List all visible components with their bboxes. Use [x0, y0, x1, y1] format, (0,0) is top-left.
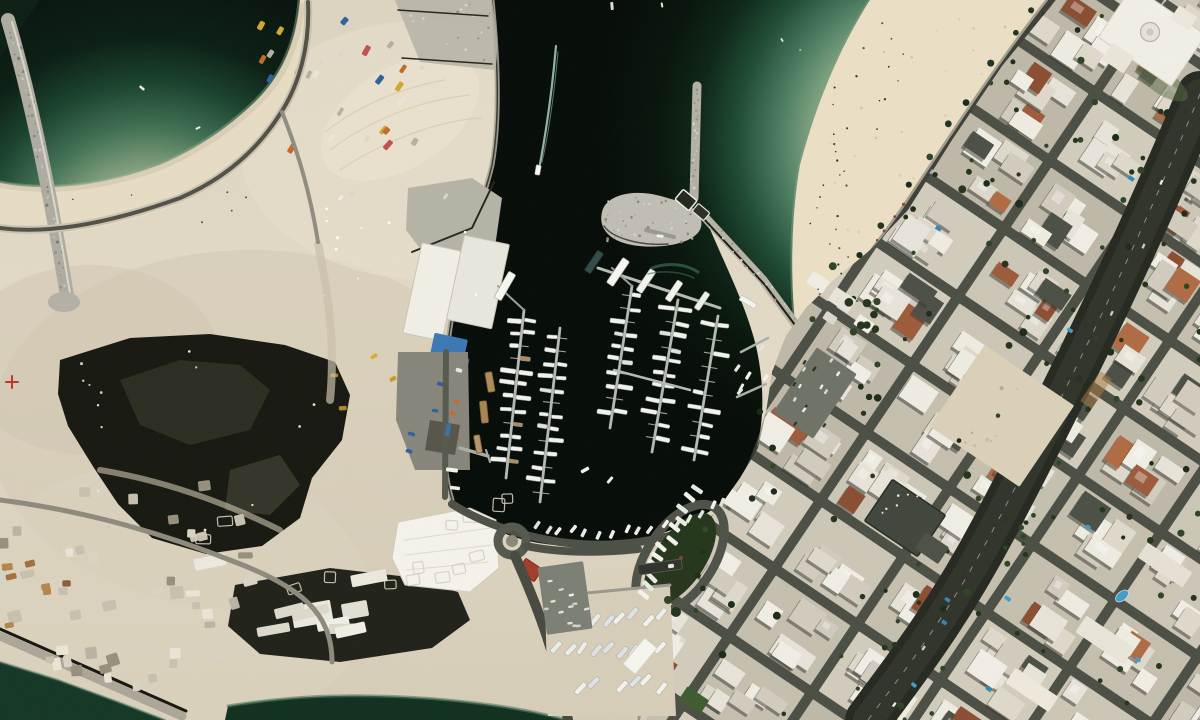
satellite-image	[0, 0, 1200, 720]
satellite-canvas	[0, 0, 1200, 720]
image-grain-overlay	[0, 0, 1200, 720]
